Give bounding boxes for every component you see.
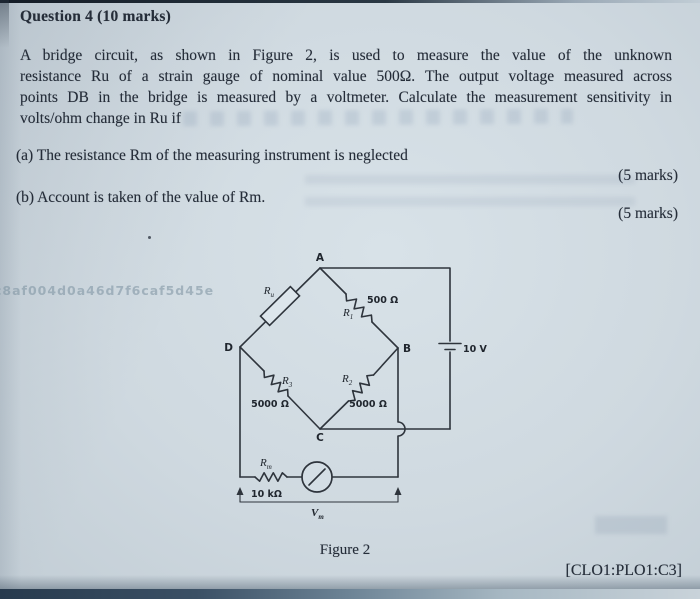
bleed-through-smudge (305, 164, 635, 206)
value-battery: 10 V (463, 344, 488, 355)
node-label-a: A (316, 252, 325, 264)
item-a-text: (a) The resistance Rm of the measuring i… (16, 146, 408, 165)
value-r3: 5000 Ω (251, 399, 289, 410)
body-line-2: resistance Ru of a strain gauge of nomin… (20, 66, 672, 87)
scan-corner-shadow (0, 0, 9, 48)
item-a-marks: (5 marks) (618, 166, 678, 185)
label-rm: Rm (259, 457, 272, 471)
scan-bottom-edge (0, 589, 700, 599)
label-ru: Ru (263, 285, 275, 299)
node-label-c: C (316, 432, 324, 444)
value-rm: 10 kΩ (251, 489, 282, 500)
wire-c-b (320, 348, 398, 429)
body-line-4: volts/ohm change in Ru if (20, 108, 672, 129)
body-line-3: points DB in the bridge is measured by a… (20, 87, 672, 108)
item-b-text: (b) Account is taken of the value of Rm. (16, 188, 265, 207)
body-line-1: A bridge circuit, as shown in Figure 2, … (20, 45, 672, 66)
value-r1: 500 Ω (367, 295, 398, 306)
scanned-exam-page: Question 4 (10 marks) A bridge circuit, … (0, 0, 700, 599)
question-heading: Question 4 (10 marks) (20, 8, 171, 26)
resistor-r2-icon (349, 375, 374, 401)
resistor-rm-icon (255, 473, 287, 481)
node-label-d: D (224, 342, 233, 354)
bleed-through-smudge (595, 516, 667, 534)
node-label-b: B (403, 343, 411, 355)
wire-b-down-hop (398, 348, 405, 477)
label-vm: Vm (311, 507, 324, 521)
item-b-marks: (5 marks) (618, 204, 678, 223)
ink-speck (148, 236, 151, 239)
scan-top-edge (0, 0, 700, 3)
label-r2: R2 (341, 373, 353, 387)
scan-bottom-shadow (0, 575, 700, 590)
label-r3: R3 (281, 375, 293, 389)
value-r2: 5000 Ω (349, 399, 387, 410)
question-body: A bridge circuit, as shown in Figure 2, … (20, 45, 672, 129)
label-r1: R1 (342, 307, 353, 321)
wire-d-c (240, 347, 320, 429)
bridge-circuit-figure: A D B C Ru R1 500 Ω R3 5000 Ω R2 5000 Ω … (170, 245, 510, 525)
figure-caption: Figure 2 (295, 542, 395, 559)
